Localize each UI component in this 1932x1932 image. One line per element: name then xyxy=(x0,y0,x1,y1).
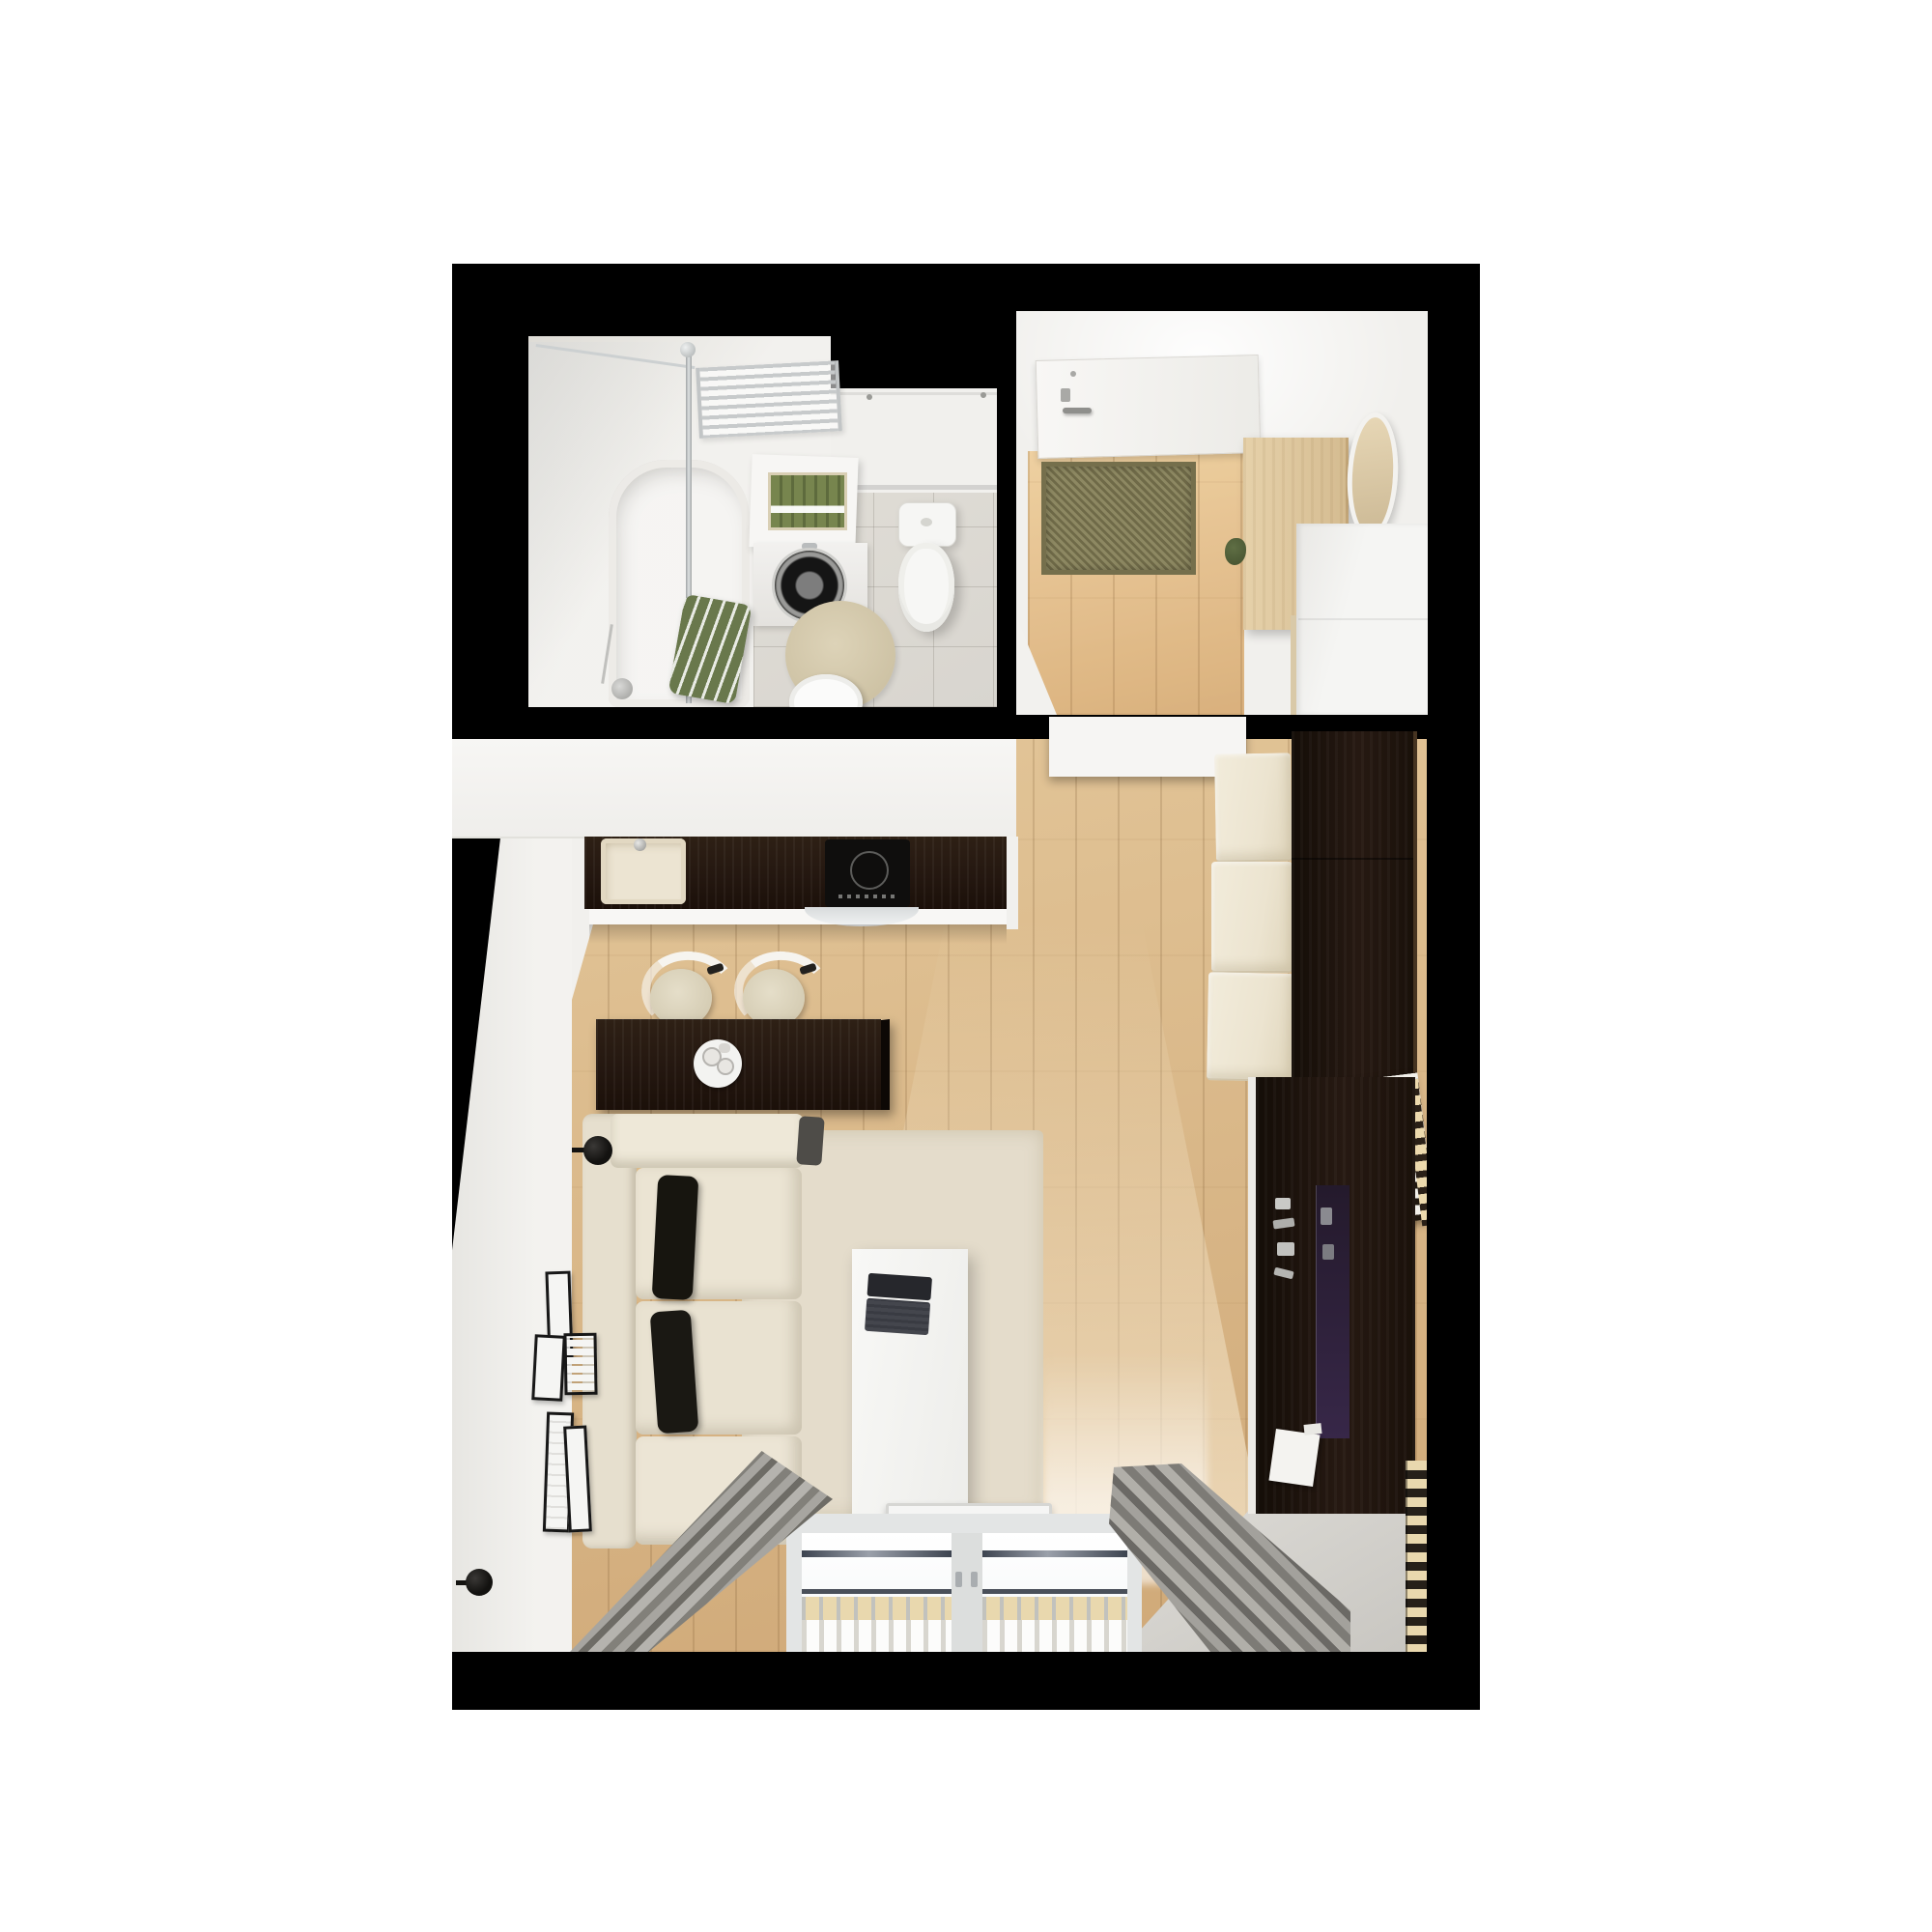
shower-pole-cap-icon xyxy=(680,342,696,357)
kitchen-soffit xyxy=(452,739,1016,838)
bathroom-shelf-edge xyxy=(831,392,997,395)
room-entry xyxy=(1016,311,1428,715)
balcony-railing-bars xyxy=(982,1620,1127,1652)
vertical-radiator xyxy=(1406,1461,1427,1652)
toilet-flush-button-icon xyxy=(921,518,932,526)
desk-accessory-icon xyxy=(1277,1242,1294,1256)
window-pane xyxy=(982,1533,1127,1652)
gallery-frame xyxy=(531,1334,566,1402)
cup-icon xyxy=(717,1058,734,1075)
sofa-chaise xyxy=(611,1114,804,1168)
window-mullion xyxy=(952,1533,982,1652)
wall-sconce-icon xyxy=(466,1569,493,1596)
faucet-icon xyxy=(634,838,646,851)
living-wardrobe xyxy=(1292,731,1417,1095)
black-cushion xyxy=(650,1310,699,1435)
window-rail-icon xyxy=(802,1589,952,1594)
laptop-screen-icon xyxy=(867,1273,932,1301)
balcony-railing-bars xyxy=(802,1620,952,1652)
shower-glass xyxy=(528,342,693,707)
bar-table xyxy=(596,1019,890,1110)
desk-side-edge xyxy=(1248,1077,1256,1514)
counter-shadow xyxy=(589,924,1007,944)
hand-shower-icon xyxy=(611,678,633,699)
floor-plan-canvas xyxy=(0,0,1932,1932)
door-peephole-icon xyxy=(1070,371,1076,377)
black-cushion xyxy=(652,1175,699,1300)
room-living xyxy=(452,715,1427,1652)
window-rail-icon xyxy=(802,1550,952,1557)
door-handle-icon xyxy=(1063,408,1092,413)
desk-accessory-icon xyxy=(1321,1207,1332,1225)
cooktop-controls-icon xyxy=(838,895,898,898)
cabinet-seam xyxy=(1298,618,1428,620)
toilet-bowl xyxy=(898,543,954,632)
plan-outline xyxy=(452,264,1480,1710)
front-door xyxy=(1036,355,1262,459)
desk-accessory-icon xyxy=(1322,1244,1334,1260)
wall-sconce-icon xyxy=(583,1136,612,1165)
window-handle-icon xyxy=(971,1572,978,1587)
paper-sheet xyxy=(1303,1423,1321,1435)
counter-end-wall xyxy=(1007,837,1018,929)
gallery-frame xyxy=(563,1333,597,1396)
window-pane xyxy=(802,1533,952,1652)
rolled-towels xyxy=(768,472,847,530)
counter-front-panel xyxy=(589,909,1007,924)
towel-radiator xyxy=(696,360,842,439)
washer-handle-icon xyxy=(802,543,817,550)
sofa-back xyxy=(582,1114,637,1548)
doormat xyxy=(1041,462,1196,575)
sofa-throw-icon xyxy=(796,1116,824,1166)
desk-accessory-icon xyxy=(1275,1198,1291,1209)
wardrobe-seam xyxy=(1292,858,1413,860)
laptop xyxy=(865,1273,932,1335)
stool-seat xyxy=(743,969,805,1027)
laptop-keyboard-icon xyxy=(865,1298,930,1336)
window-rail-icon xyxy=(982,1550,1127,1557)
cooktop-ring-icon xyxy=(850,851,889,890)
stool-seat xyxy=(650,969,712,1027)
upholstered-panel xyxy=(1214,753,1293,862)
balcony-railing xyxy=(802,1597,952,1620)
balcony-window xyxy=(786,1514,1142,1652)
door-lock-icon xyxy=(1061,388,1070,402)
paper-sheet xyxy=(1268,1429,1320,1487)
room-bathroom xyxy=(528,336,997,707)
upholstered-panel xyxy=(1207,972,1293,1082)
cup-icon xyxy=(719,1043,730,1053)
upholstered-panel xyxy=(1211,862,1293,973)
window-handle-icon xyxy=(955,1572,962,1587)
window-rail-icon xyxy=(982,1589,1127,1594)
balcony-railing xyxy=(982,1597,1127,1620)
shelf-screw-icon xyxy=(867,394,872,400)
shelf-screw-icon xyxy=(980,392,986,398)
